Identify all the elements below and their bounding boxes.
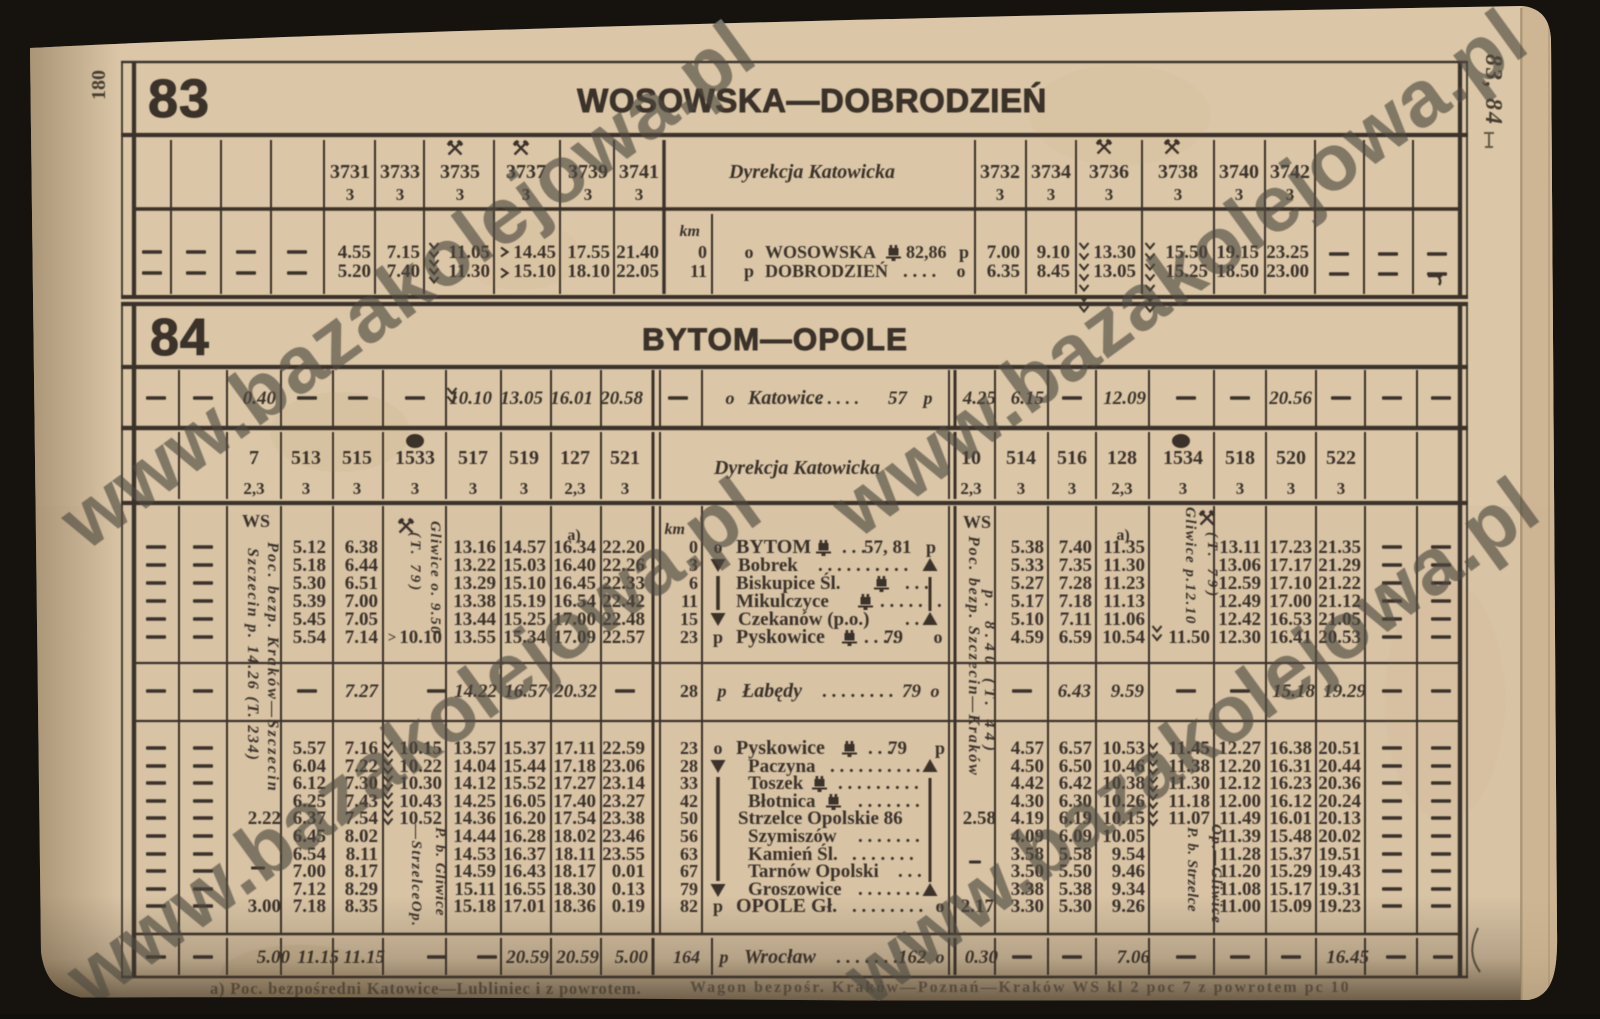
svg-text:WOSOWSKA: WOSOWSKA bbox=[765, 242, 876, 262]
svg-text:WS: WS bbox=[242, 511, 270, 531]
svg-text:—StrzelceOp.: —StrzelceOp. bbox=[408, 823, 424, 927]
svg-text:3736: 3736 bbox=[1089, 161, 1129, 183]
svg-text:128: 128 bbox=[1107, 447, 1137, 469]
svg-text:15: 15 bbox=[680, 609, 698, 629]
svg-text:3: 3 bbox=[520, 479, 529, 498]
svg-text:3: 3 bbox=[1236, 479, 1245, 498]
svg-text:3734: 3734 bbox=[1031, 161, 1071, 183]
svg-text:2.58: 2.58 bbox=[963, 808, 996, 829]
svg-text:11: 11 bbox=[690, 261, 707, 281]
svg-text:9.10: 9.10 bbox=[1037, 242, 1070, 263]
svg-text:p: p bbox=[935, 738, 945, 758]
svg-text:1534: 1534 bbox=[1163, 447, 1203, 469]
svg-text:3: 3 bbox=[621, 479, 630, 498]
svg-text:3: 3 bbox=[1068, 479, 1077, 498]
svg-text:518: 518 bbox=[1225, 447, 1255, 469]
svg-text:20.59: 20.59 bbox=[505, 947, 549, 968]
svg-text:9.26: 9.26 bbox=[1112, 896, 1145, 917]
svg-text:5.54: 5.54 bbox=[293, 627, 327, 648]
svg-text:WS: WS bbox=[963, 512, 991, 532]
svg-text:Gliwice o. 9.50: Gliwice o. 9.50 bbox=[427, 521, 443, 635]
svg-text:19.23: 19.23 bbox=[1318, 896, 1361, 917]
svg-text:p: p bbox=[744, 261, 754, 281]
svg-text:5.30: 5.30 bbox=[1059, 896, 1092, 917]
svg-text:P. b. Gliwice: P. b. Gliwice bbox=[432, 827, 448, 916]
svg-text:16.45: 16.45 bbox=[1326, 947, 1369, 968]
svg-text:p: p bbox=[713, 896, 723, 916]
svg-text:164: 164 bbox=[673, 947, 700, 967]
svg-text:57: 57 bbox=[888, 388, 909, 409]
svg-text:Pyskowice: Pyskowice bbox=[736, 626, 825, 648]
svg-text:7.00: 7.00 bbox=[987, 242, 1020, 263]
svg-text:6.35: 6.35 bbox=[987, 261, 1020, 282]
svg-text:2,3: 2,3 bbox=[243, 479, 264, 498]
svg-text:Łabędy: Łabędy bbox=[741, 680, 802, 702]
svg-text:3: 3 bbox=[396, 185, 405, 204]
svg-text:3: 3 bbox=[1017, 479, 1026, 498]
svg-text:p. 8.40 (T. 44): p. 8.40 (T. 44) bbox=[981, 588, 998, 756]
svg-text:p: p bbox=[713, 627, 723, 647]
svg-text:4.59: 4.59 bbox=[1011, 627, 1044, 648]
svg-text:Dyrekcja Katowicka: Dyrekcja Katowicka bbox=[728, 161, 895, 183]
svg-text:3: 3 bbox=[302, 479, 311, 498]
svg-text:522: 522 bbox=[1326, 447, 1356, 469]
svg-text:(T. 79): (T. 79) bbox=[407, 532, 423, 593]
svg-text:15.09: 15.09 bbox=[1269, 896, 1312, 917]
svg-text:20.58: 20.58 bbox=[599, 388, 643, 409]
svg-text:(T. 79): (T. 79) bbox=[1204, 532, 1220, 600]
svg-text:3735: 3735 bbox=[440, 161, 480, 183]
svg-text:0: 0 bbox=[698, 242, 707, 262]
svg-text:3732: 3732 bbox=[980, 161, 1020, 183]
svg-text:23.00: 23.00 bbox=[1266, 261, 1309, 282]
svg-text:P. b. Strzelce: P. b. Strzelce bbox=[1184, 827, 1200, 912]
svg-text:18.10: 18.10 bbox=[567, 261, 610, 282]
svg-text:7.18: 7.18 bbox=[293, 896, 326, 917]
svg-text:7.06: 7.06 bbox=[1117, 947, 1151, 968]
svg-text:3: 3 bbox=[996, 185, 1005, 204]
svg-text:o: o bbox=[714, 738, 723, 758]
svg-text:1533: 1533 bbox=[395, 447, 435, 469]
svg-text:3: 3 bbox=[1179, 479, 1188, 498]
svg-text:Poc. bezp. Szczecin—Kraków: Poc. bezp. Szczecin—Kraków bbox=[965, 535, 982, 777]
svg-text:Gliwice p.12.10: Gliwice p.12.10 bbox=[1182, 507, 1198, 625]
svg-text:6.59: 6.59 bbox=[1059, 627, 1092, 648]
svg-text:13.05: 13.05 bbox=[500, 388, 543, 409]
svg-text:16.01: 16.01 bbox=[550, 388, 593, 409]
svg-text:a): a) bbox=[1116, 527, 1129, 544]
svg-text:3: 3 bbox=[1047, 185, 1056, 204]
svg-text:Op.—Gliwice: Op.—Gliwice bbox=[1208, 824, 1224, 924]
svg-text:p: p bbox=[716, 681, 727, 701]
svg-text:3: 3 bbox=[1287, 479, 1296, 498]
svg-text:3: 3 bbox=[411, 479, 420, 498]
svg-text:Szczecin p. 14.26 (T. 234): Szczecin p. 14.26 (T. 234) bbox=[244, 548, 261, 762]
svg-text:6.43: 6.43 bbox=[1058, 681, 1091, 702]
svg-text:2,3: 2,3 bbox=[1111, 479, 1132, 498]
svg-text:3738: 3738 bbox=[1158, 161, 1198, 183]
svg-text:p: p bbox=[959, 242, 969, 262]
svg-text:. . . . . . . .: . . . . . . . . bbox=[822, 681, 893, 702]
svg-text:28: 28 bbox=[680, 681, 698, 701]
svg-text:517: 517 bbox=[458, 447, 488, 469]
svg-text:15.10: 15.10 bbox=[513, 261, 556, 282]
svg-text:km: km bbox=[680, 223, 700, 240]
svg-text:3: 3 bbox=[353, 479, 362, 498]
svg-text:o: o bbox=[934, 627, 943, 647]
svg-text:11.15: 11.15 bbox=[343, 947, 385, 968]
svg-text:11.15: 11.15 bbox=[297, 947, 339, 968]
svg-text:180: 180 bbox=[88, 70, 110, 100]
svg-text:p: p bbox=[718, 947, 729, 967]
svg-text:17.55: 17.55 bbox=[567, 242, 610, 263]
svg-text:9.59: 9.59 bbox=[1111, 681, 1145, 702]
svg-text:67: 67 bbox=[680, 861, 698, 881]
svg-text:7.27: 7.27 bbox=[345, 681, 380, 702]
svg-text:127: 127 bbox=[560, 447, 590, 469]
svg-text:50: 50 bbox=[680, 808, 698, 828]
svg-text:3: 3 bbox=[346, 185, 355, 204]
svg-text:515: 515 bbox=[342, 447, 372, 469]
svg-text:56: 56 bbox=[680, 826, 698, 846]
svg-text:Poc. bezp. Kraków—Szczecin: Poc. bezp. Kraków—Szczecin bbox=[264, 541, 281, 793]
svg-text:513: 513 bbox=[291, 447, 321, 469]
svg-text:23: 23 bbox=[680, 738, 698, 758]
svg-text:11.50: 11.50 bbox=[1168, 627, 1210, 648]
svg-text:OPOLE Gł.: OPOLE Gł. bbox=[736, 895, 837, 917]
svg-text:22.05: 22.05 bbox=[616, 261, 659, 282]
svg-text:2,3: 2,3 bbox=[564, 479, 585, 498]
svg-text:p: p bbox=[926, 537, 936, 557]
svg-text:33: 33 bbox=[680, 773, 698, 793]
svg-text:15.18: 15.18 bbox=[453, 896, 496, 917]
svg-text:3: 3 bbox=[1174, 185, 1183, 204]
svg-text:BYTOM—OPOLE: BYTOM—OPOLE bbox=[642, 321, 908, 357]
svg-text:516: 516 bbox=[1057, 447, 1087, 469]
svg-text:79: 79 bbox=[884, 627, 903, 648]
svg-text:79: 79 bbox=[902, 681, 922, 702]
svg-text:17.01: 17.01 bbox=[503, 896, 546, 917]
svg-text:a) Poc. bezpośredni Katowice—L: a) Poc. bezpośredni Katowice—Lubliniec i… bbox=[210, 979, 641, 998]
svg-text:84: 84 bbox=[150, 309, 210, 367]
svg-text:o: o bbox=[745, 242, 754, 262]
svg-text:3: 3 bbox=[469, 479, 478, 498]
svg-text:521: 521 bbox=[610, 447, 640, 469]
svg-text:514: 514 bbox=[1006, 447, 1036, 469]
svg-text:3: 3 bbox=[1337, 479, 1346, 498]
svg-text:3733: 3733 bbox=[380, 161, 420, 183]
svg-text:a): a) bbox=[567, 527, 580, 544]
svg-text:82,86: 82,86 bbox=[906, 242, 947, 262]
svg-text:. . .: . . . bbox=[905, 609, 929, 630]
svg-text:11.00: 11.00 bbox=[1219, 896, 1261, 917]
svg-text:5.00: 5.00 bbox=[615, 947, 649, 968]
svg-text:3: 3 bbox=[1105, 185, 1114, 204]
svg-text:519: 519 bbox=[509, 447, 539, 469]
svg-text:0.19: 0.19 bbox=[612, 896, 645, 917]
svg-text:. . . . . . .: . . . . . . . bbox=[800, 388, 859, 408]
svg-text:o: o bbox=[726, 388, 735, 408]
svg-text:8.45: 8.45 bbox=[1037, 261, 1070, 282]
svg-text:. . . .: . . . . bbox=[903, 261, 936, 282]
svg-text:23: 23 bbox=[680, 627, 698, 647]
svg-text:11.07: 11.07 bbox=[1168, 808, 1210, 829]
svg-text:18.36: 18.36 bbox=[553, 896, 596, 917]
svg-text:12.09: 12.09 bbox=[1103, 388, 1146, 409]
svg-text:8.35: 8.35 bbox=[345, 896, 378, 917]
svg-text:5.00: 5.00 bbox=[257, 947, 291, 968]
svg-text:82: 82 bbox=[680, 896, 698, 916]
svg-text:83: 83 bbox=[148, 69, 210, 129]
svg-text:21.40: 21.40 bbox=[616, 242, 659, 263]
svg-text:3: 3 bbox=[635, 185, 644, 204]
svg-text:>: > bbox=[388, 630, 397, 646]
svg-text:Wrocław: Wrocław bbox=[744, 946, 817, 968]
svg-text:Wagon bezpośr. Kraków—Poznań—K: Wagon bezpośr. Kraków—Poznań—Kraków WS k… bbox=[690, 979, 1351, 996]
svg-text:DOBRODZIEŃ: DOBRODZIEŃ bbox=[765, 260, 888, 281]
svg-text:520: 520 bbox=[1276, 447, 1306, 469]
svg-text:3731: 3731 bbox=[330, 161, 370, 183]
svg-text:7.14: 7.14 bbox=[345, 627, 379, 648]
svg-text:10.54: 10.54 bbox=[1102, 627, 1145, 648]
svg-text:20.59: 20.59 bbox=[555, 947, 599, 968]
svg-text:o: o bbox=[957, 261, 966, 281]
svg-text:20.56: 20.56 bbox=[1268, 388, 1312, 409]
svg-text:o: o bbox=[931, 681, 940, 701]
